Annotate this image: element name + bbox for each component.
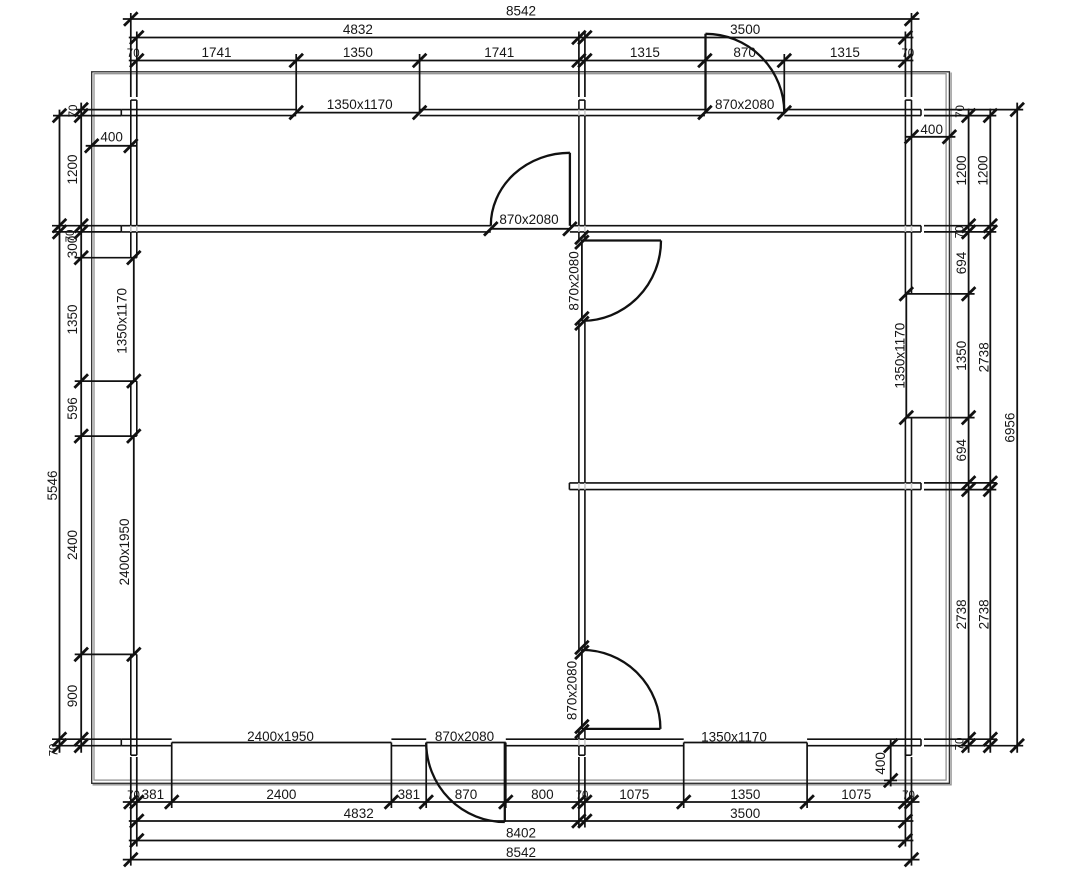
svg-text:870x2080: 870x2080 <box>564 661 579 720</box>
svg-text:2400x1950: 2400x1950 <box>247 729 314 744</box>
svg-text:400: 400 <box>873 752 888 775</box>
svg-text:800: 800 <box>531 787 554 802</box>
svg-text:694: 694 <box>954 251 969 274</box>
svg-text:1350x1170: 1350x1170 <box>701 729 767 744</box>
svg-text:381: 381 <box>398 787 421 802</box>
svg-text:70: 70 <box>955 738 967 751</box>
svg-text:70: 70 <box>955 226 967 239</box>
svg-text:70: 70 <box>127 48 140 60</box>
svg-text:870x2080: 870x2080 <box>499 212 558 227</box>
svg-text:870x2080: 870x2080 <box>566 251 581 310</box>
svg-text:70: 70 <box>902 790 915 802</box>
svg-text:870: 870 <box>733 45 756 60</box>
svg-text:1200: 1200 <box>65 154 80 184</box>
svg-text:381: 381 <box>142 787 165 802</box>
svg-text:1315: 1315 <box>630 45 660 60</box>
svg-text:2400x1950: 2400x1950 <box>117 518 132 585</box>
svg-text:70: 70 <box>955 105 967 118</box>
svg-text:400: 400 <box>100 130 123 145</box>
svg-text:2400: 2400 <box>266 787 296 802</box>
svg-text:694: 694 <box>954 438 969 461</box>
svg-text:1200: 1200 <box>954 155 969 185</box>
svg-text:3500: 3500 <box>730 22 760 37</box>
svg-text:1315: 1315 <box>830 45 860 60</box>
svg-text:4832: 4832 <box>343 22 373 37</box>
svg-text:8542: 8542 <box>506 845 536 860</box>
svg-text:8542: 8542 <box>506 4 536 19</box>
svg-text:870: 870 <box>455 787 478 802</box>
svg-text:70: 70 <box>576 790 589 802</box>
svg-text:870x2080: 870x2080 <box>715 97 774 112</box>
svg-text:1350: 1350 <box>65 304 80 334</box>
svg-text:4832: 4832 <box>344 806 374 821</box>
svg-text:1350x1170: 1350x1170 <box>892 323 907 389</box>
svg-text:1741: 1741 <box>201 45 231 60</box>
svg-text:6956: 6956 <box>1002 413 1017 443</box>
svg-text:2738: 2738 <box>976 599 991 629</box>
svg-text:3500: 3500 <box>730 806 760 821</box>
svg-text:2738: 2738 <box>954 599 969 629</box>
svg-text:1075: 1075 <box>841 787 871 802</box>
svg-text:2738: 2738 <box>976 342 991 372</box>
svg-text:1741: 1741 <box>484 45 514 60</box>
svg-text:1350x1170: 1350x1170 <box>327 97 393 112</box>
svg-text:870x2080: 870x2080 <box>435 729 494 744</box>
svg-text:70: 70 <box>127 790 140 802</box>
svg-text:5546: 5546 <box>45 470 60 500</box>
svg-text:1350: 1350 <box>730 787 760 802</box>
svg-text:1350: 1350 <box>343 45 373 60</box>
svg-text:70: 70 <box>49 744 61 757</box>
svg-text:70: 70 <box>65 230 77 243</box>
svg-text:900: 900 <box>65 685 80 708</box>
svg-text:2400: 2400 <box>65 530 80 560</box>
svg-text:70: 70 <box>68 105 80 118</box>
svg-text:1350: 1350 <box>954 341 969 371</box>
svg-text:8402: 8402 <box>506 826 536 841</box>
svg-text:596: 596 <box>65 397 80 420</box>
svg-text:1075: 1075 <box>619 787 649 802</box>
svg-text:1200: 1200 <box>975 155 990 185</box>
svg-text:400: 400 <box>920 122 943 137</box>
svg-text:1350x1170: 1350x1170 <box>114 288 129 354</box>
svg-text:70: 70 <box>901 48 914 60</box>
